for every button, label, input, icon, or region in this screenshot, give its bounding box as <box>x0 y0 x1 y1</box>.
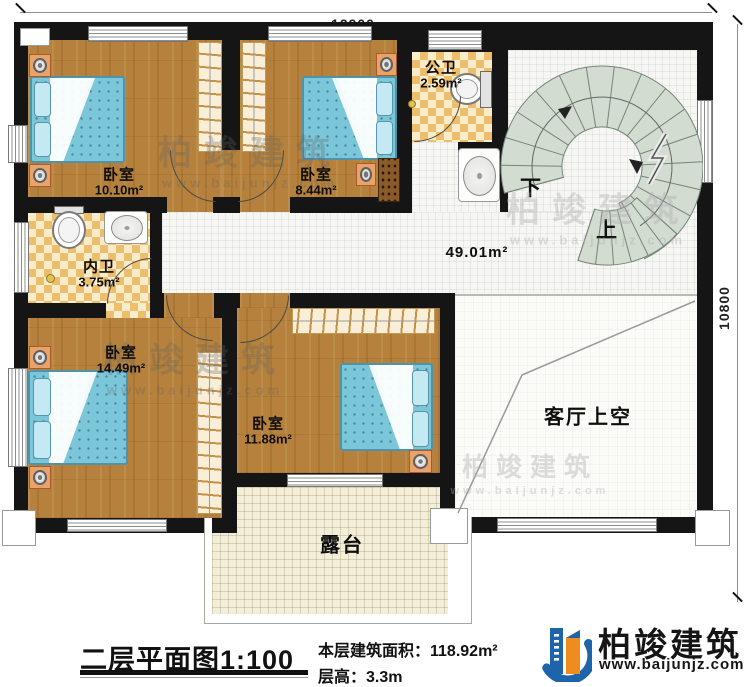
room-label-bedroom4: 卧室11.88m² <box>244 416 292 445</box>
wall-segment <box>213 197 240 213</box>
sink-basin <box>463 156 496 196</box>
wall-segment <box>212 518 237 533</box>
nightstand <box>29 346 51 369</box>
dresser <box>378 158 400 202</box>
floor-area-text: 本层建筑面积：118.92m² <box>318 637 498 661</box>
room-label-living-void: 客厅上空 <box>544 401 632 430</box>
nightstand <box>376 53 397 76</box>
toilet-tank <box>480 71 492 108</box>
title-underline <box>80 670 308 675</box>
window <box>497 518 657 532</box>
brand-website: www.baijunjz.com <box>599 656 744 673</box>
bed <box>30 76 125 163</box>
room-label-bedroom1: 卧室10.10m² <box>95 167 143 196</box>
bed <box>340 363 433 451</box>
closet <box>292 308 435 334</box>
brand-logo-icon <box>528 616 592 682</box>
window <box>88 26 188 42</box>
bed <box>28 370 128 465</box>
floor-plan-page: 12900 10800 <box>0 0 750 687</box>
floor-height-text: 层高：3.3m <box>318 663 402 687</box>
nightstand <box>409 450 432 473</box>
closet <box>198 42 222 152</box>
window <box>8 368 28 467</box>
title-underline-2 <box>80 677 308 678</box>
dimension-line-right <box>737 24 738 602</box>
closet <box>242 42 266 152</box>
closet <box>197 352 222 514</box>
room-label-bedroom3: 卧室14.49m² <box>97 345 145 374</box>
door-opening <box>106 303 150 318</box>
window <box>14 222 29 293</box>
nightstand <box>29 466 51 489</box>
bed <box>302 76 397 160</box>
nightstand <box>29 54 51 77</box>
toilet <box>52 211 86 249</box>
window <box>428 30 482 50</box>
pier <box>695 510 730 546</box>
floor-drain <box>46 274 55 283</box>
nightstand <box>356 163 376 186</box>
room-label-public-bath: 公卫2.59m² <box>420 60 461 89</box>
window <box>8 125 28 163</box>
pier <box>20 28 50 46</box>
stair-down-label: 下 <box>520 172 541 202</box>
stair-up-label: 上 <box>596 214 617 244</box>
window <box>268 26 372 42</box>
nightstand <box>29 164 51 187</box>
terrace-sliding-door <box>287 474 383 487</box>
sink-basin <box>111 215 143 241</box>
wall-segment <box>290 293 455 308</box>
window <box>67 519 167 532</box>
room-label-terrace: 露台 <box>320 529 364 558</box>
room-label-inner-bath: 内卫3.75m² <box>78 259 119 288</box>
room-label-hall-area: 49.01m² <box>446 245 509 261</box>
pier <box>2 510 36 546</box>
dimension-height: 10800 <box>716 286 732 330</box>
dimension-line-top <box>20 12 712 13</box>
room-label-bedroom2: 卧室8.44m² <box>295 167 336 196</box>
